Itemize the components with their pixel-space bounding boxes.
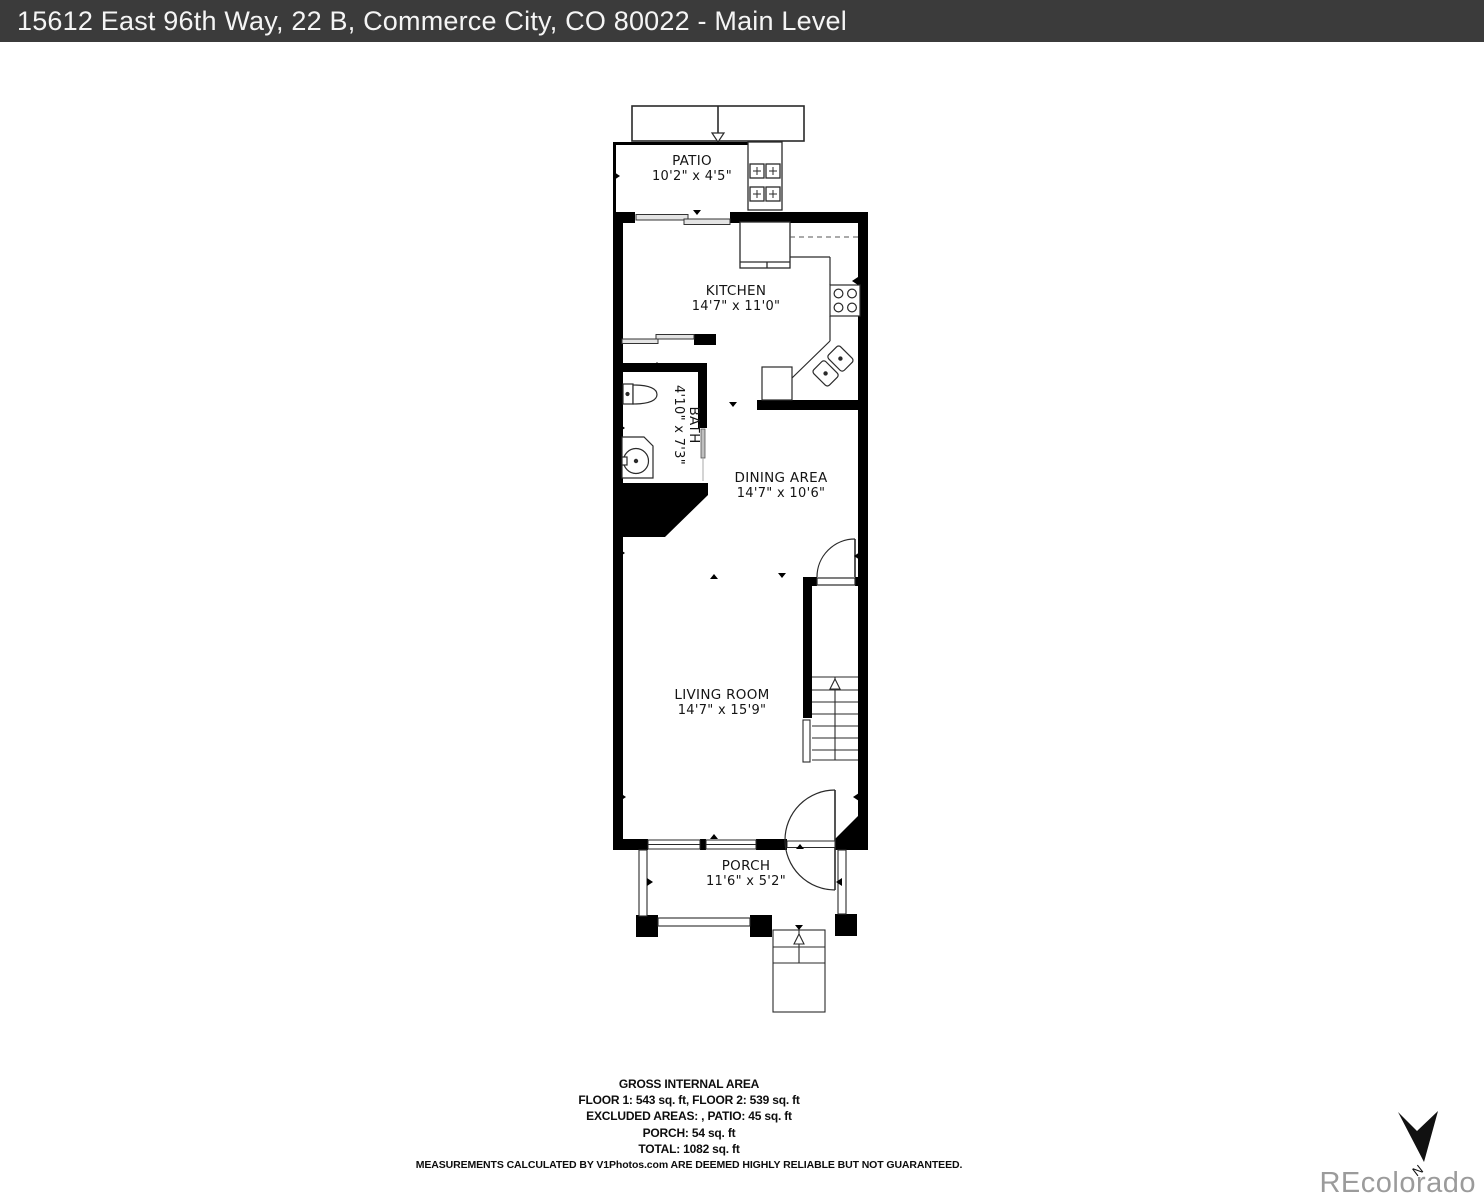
porch-post xyxy=(750,915,772,937)
room-dims: 10'2" x 4'5" xyxy=(652,169,732,184)
stairs-up-arrow-icon xyxy=(830,679,840,689)
disclaimer-text: MEASUREMENTS CALCULATED BY V1Photos.com … xyxy=(189,1157,1189,1173)
room-dims: 11'6" x 5'2" xyxy=(706,874,786,889)
area-total-line: TOTAL: 1082 sq. ft xyxy=(189,1141,1189,1157)
room-name: DINING AREA xyxy=(735,471,828,486)
floorplan-page: { "header": { "title": "15612 East 96th … xyxy=(0,0,1484,1200)
bathroom-vanity-sink xyxy=(622,437,653,478)
watermark-text: REcolorado xyxy=(1319,1167,1476,1200)
area-floors-line: FLOOR 1: 543 sq. ft, FLOOR 2: 539 sq. ft xyxy=(189,1092,1189,1108)
room-name: PATIO xyxy=(652,154,732,169)
area-summary: GROSS INTERNAL AREA FLOOR 1: 543 sq. ft,… xyxy=(189,1076,1189,1173)
floorplan-drawing xyxy=(0,0,1484,1200)
fridge xyxy=(740,222,790,268)
room-name: LIVING ROOM xyxy=(674,688,769,703)
room-name: KITCHEN xyxy=(692,284,781,299)
room-label-living: LIVING ROOM 14'7" x 15'9" xyxy=(674,688,769,718)
kitchen-sink xyxy=(812,345,854,387)
toilet xyxy=(623,384,657,404)
room-label-porch: PORCH 11'6" x 5'2" xyxy=(706,859,786,889)
room-name: BATH xyxy=(686,385,701,465)
closet-sliders xyxy=(622,335,694,344)
under-stair-wall xyxy=(613,483,708,537)
stove xyxy=(830,285,860,316)
sliding-door xyxy=(636,215,730,225)
front-door xyxy=(785,790,835,890)
stair-door xyxy=(817,539,855,585)
grill-unit xyxy=(748,142,782,210)
room-dims: 14'7" x 11'0" xyxy=(692,299,781,314)
north-arrow-icon xyxy=(1398,1111,1438,1162)
room-label-kitchen: KITCHEN 14'7" x 11'0" xyxy=(692,284,781,314)
corner-diagonal-wall xyxy=(835,806,868,850)
porch-steps xyxy=(773,930,825,1012)
room-dims: 14'7" x 10'6" xyxy=(735,486,828,501)
front-door-threshold xyxy=(787,841,835,848)
area-porch-line: PORCH: 54 sq. ft xyxy=(189,1125,1189,1141)
room-name: PORCH xyxy=(706,859,786,874)
room-dims: 14'7" x 15'9" xyxy=(674,703,769,718)
porch-post xyxy=(636,915,658,937)
porch-post xyxy=(835,914,857,936)
room-label-bath: BATH 4'10" x 7'3" xyxy=(671,385,701,465)
room-label-dining: DINING AREA 14'7" x 10'6" xyxy=(735,471,828,501)
room-label-patio: PATIO 10'2" x 4'5" xyxy=(652,154,732,184)
room-dims: 4'10" x 7'3" xyxy=(671,385,686,465)
area-excluded-line: EXCLUDED AREAS: , PATIO: 45 sq. ft xyxy=(189,1108,1189,1124)
area-summary-title: GROSS INTERNAL AREA xyxy=(189,1076,1189,1092)
fence xyxy=(632,106,804,142)
